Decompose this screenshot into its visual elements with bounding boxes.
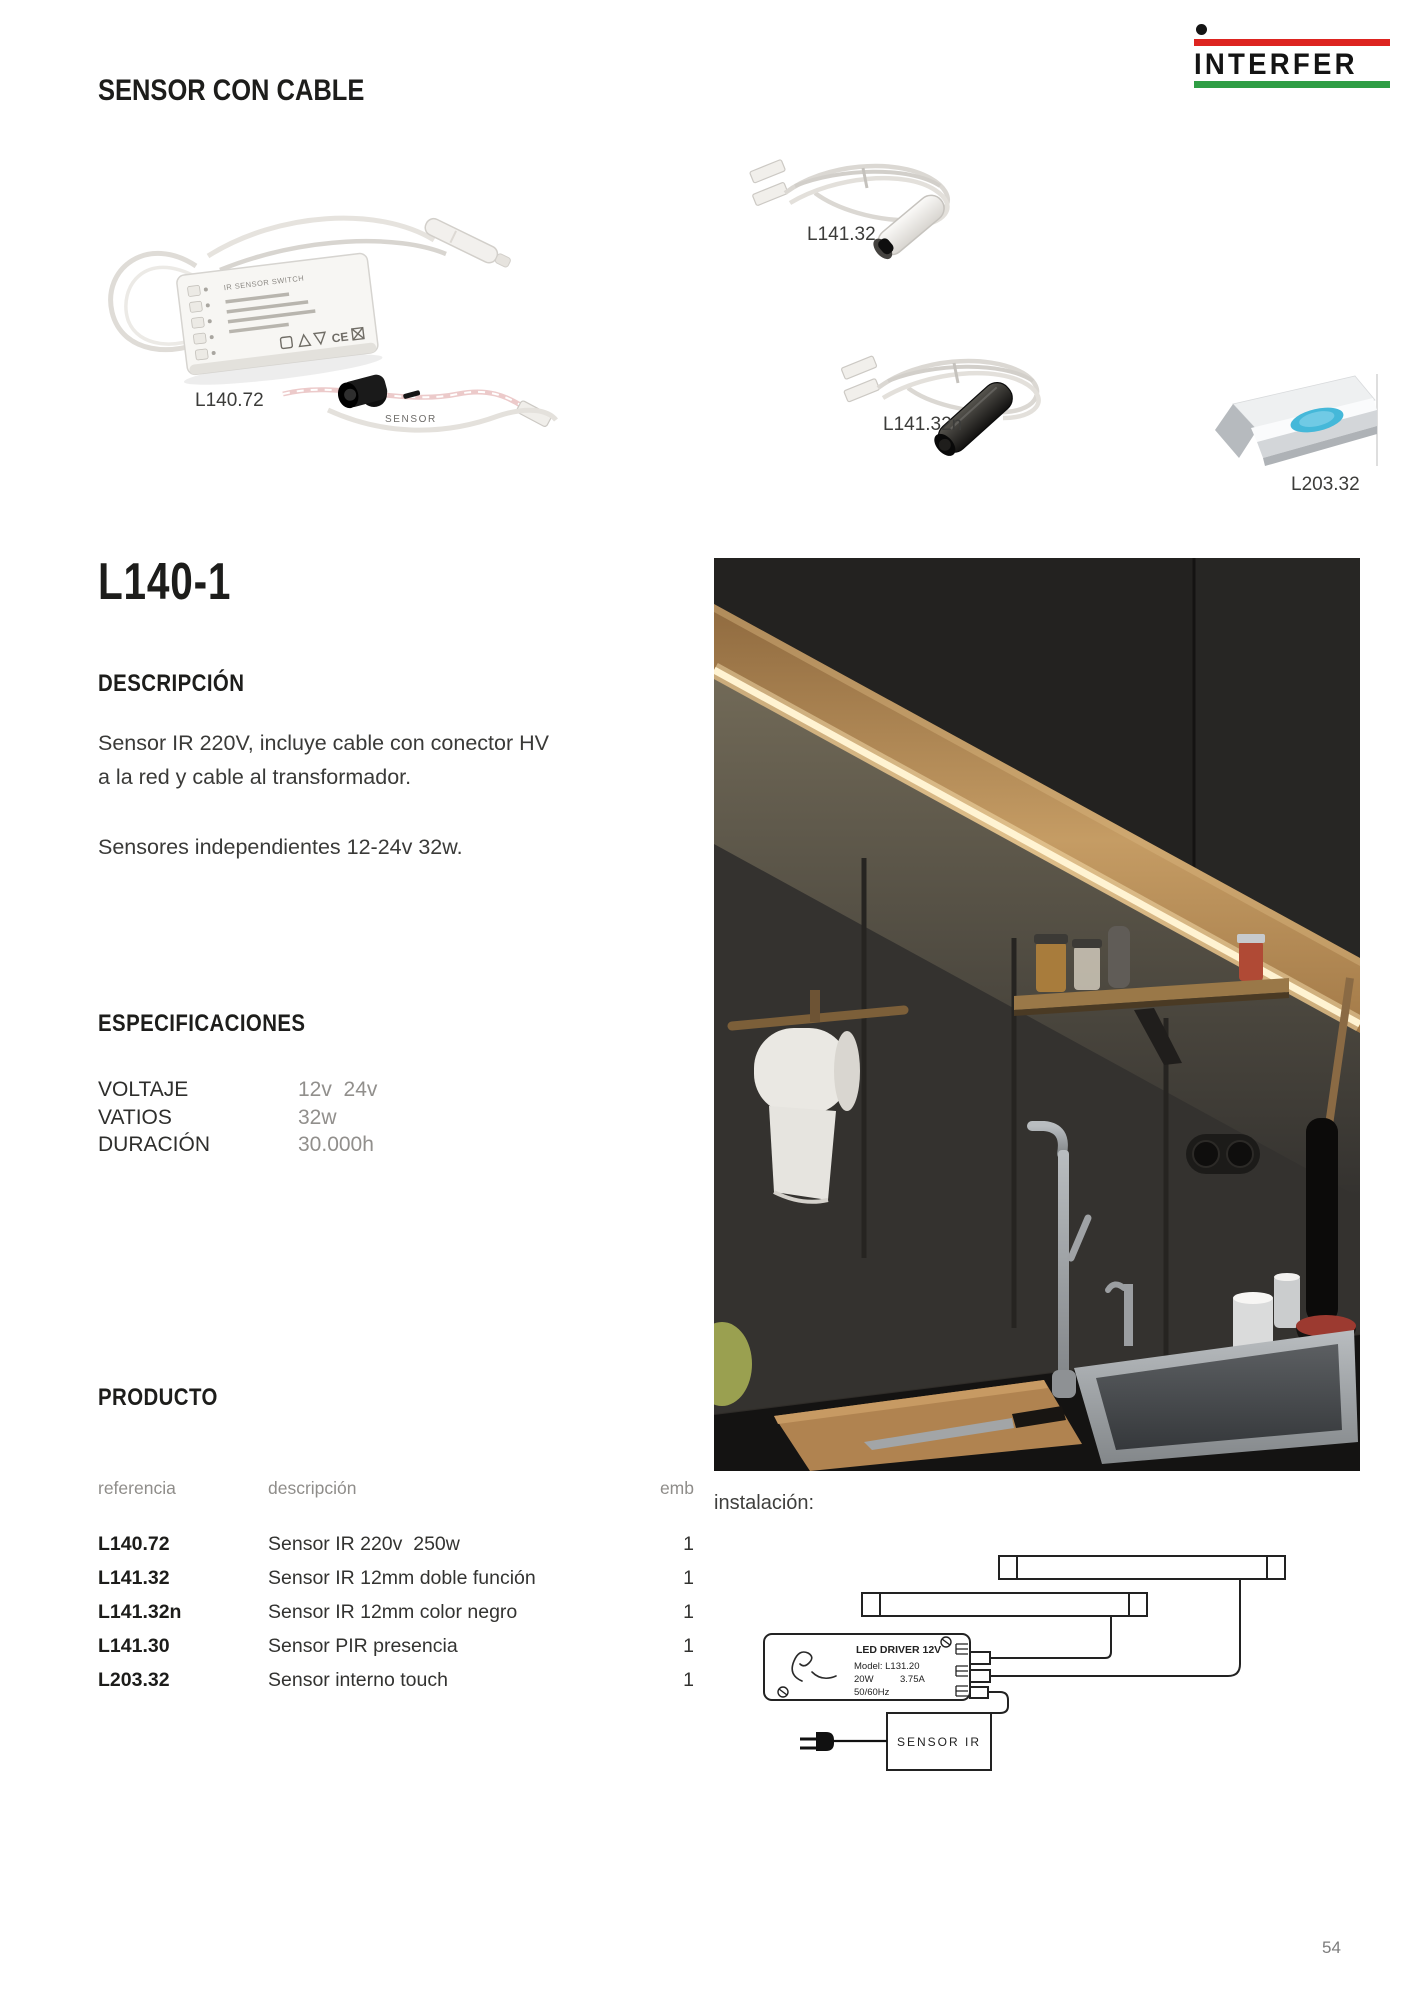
producto-heading: PRODUCTO: [98, 1384, 218, 1412]
logo-green-bar: [1194, 81, 1390, 88]
product-label-l140-72: L140.72: [195, 390, 264, 412]
power-outlet: [1186, 1134, 1260, 1174]
product-photo-l141-32: [745, 148, 995, 288]
cell-desc: Sensor IR 220v 250w: [268, 1527, 652, 1561]
spec-value: 30.000h: [298, 1131, 374, 1159]
especificaciones-heading: ESPECIFICACIONES: [98, 1010, 305, 1038]
cell-desc: Sensor interno touch: [268, 1663, 652, 1697]
driver-box: IR SENSOR SWITCH CE: [171, 252, 384, 391]
table-row: L141.32 Sensor IR 12mm doble función 1: [98, 1561, 694, 1595]
descripcion-heading: DESCRIPCIÓN: [98, 670, 244, 698]
kitchen-photo: [714, 558, 1360, 1471]
led-profile-top: [999, 1556, 1285, 1579]
product-label-l141-32: L141.32: [807, 224, 876, 246]
ce-mark: CE: [331, 330, 349, 346]
table-row: L203.32 Sensor interno touch 1: [98, 1663, 694, 1697]
driver-current: 3.75A: [900, 1674, 925, 1685]
driver-model: Model: L131.20: [854, 1661, 920, 1672]
cell-ref: L141.32n: [98, 1595, 268, 1629]
table-row: L140.72 Sensor IR 220v 250w 1: [98, 1527, 694, 1561]
cell-desc: Sensor IR 12mm color negro: [268, 1595, 652, 1629]
descripcion-line-1: Sensor IR 220V, incluye cable con conect…: [98, 726, 549, 760]
product-photo-l140-72: IR SENSOR SWITCH CE: [78, 148, 568, 448]
table-header: referencia descripción emb: [98, 1478, 694, 1499]
col-referencia: referencia: [98, 1478, 268, 1499]
sensor-head-white: [869, 190, 949, 263]
driver-frequency: 50/60Hz: [854, 1687, 890, 1698]
table-row: L141.30 Sensor PIR presencia 1: [98, 1629, 694, 1663]
descripcion-line-2: a la red y cable al transformador.: [98, 760, 549, 794]
page-title: SENSOR CON CABLE: [98, 74, 364, 108]
product-label-l203-32: L203.32: [1291, 474, 1360, 496]
cell-emb: 1: [652, 1595, 694, 1629]
spec-label: DURACIÓN: [98, 1131, 298, 1159]
driver-power: 20W: [854, 1674, 874, 1685]
cell-ref: L141.30: [98, 1629, 268, 1663]
sensor-ir-label: SENSOR IR: [897, 1735, 981, 1749]
cell-ref: L203.32: [98, 1663, 268, 1697]
pepper-mill: [1306, 1118, 1338, 1323]
driver-title: LED DRIVER 12V: [856, 1644, 941, 1656]
cell-desc: Sensor IR 12mm doble función: [268, 1561, 652, 1595]
table-row: L141.32n Sensor IR 12mm color negro 1: [98, 1595, 694, 1629]
hv-connector: [423, 216, 513, 272]
spec-value: 12v 24v: [298, 1076, 377, 1104]
installation-diagram: LED DRIVER 12V Model: L131.20 20W 3.75A …: [750, 1540, 1310, 1810]
led-profile-middle: [862, 1593, 1147, 1616]
product-label-l141-32n: L141.32n: [883, 414, 962, 436]
spec-row-voltaje: VOLTAJE 12v 24v: [98, 1076, 377, 1104]
catalog-page: SENSOR CON CABLE INTERFER: [0, 0, 1414, 2000]
col-emb: emb: [652, 1478, 694, 1499]
col-descripcion: descripción: [268, 1478, 652, 1499]
descripcion-note: Sensores independientes 12-24v 32w.: [98, 830, 463, 864]
spec-row-vatios: VATIOS 32w: [98, 1104, 377, 1132]
power-plug-icon: [800, 1732, 887, 1751]
section-code: L140-1: [98, 552, 231, 612]
cell-desc: Sensor PIR presencia: [268, 1629, 652, 1663]
product-photo-l141-32n: [838, 348, 1093, 483]
spec-value: 32w: [298, 1104, 337, 1132]
spec-table: VOLTAJE 12v 24v VATIOS 32w DURACIÓN 30.0…: [98, 1076, 377, 1159]
spec-label: VATIOS: [98, 1104, 298, 1132]
cell-emb: 1: [652, 1527, 694, 1561]
sensor-caption: SENSOR: [385, 414, 437, 425]
spec-label: VOLTAJE: [98, 1076, 298, 1104]
cell-ref: L140.72: [98, 1527, 268, 1561]
logo-dot-icon: [1196, 24, 1207, 35]
cell-ref: L141.32: [98, 1561, 268, 1595]
cell-emb: 1: [652, 1561, 694, 1595]
cell-emb: 1: [652, 1629, 694, 1663]
brand-logo: INTERFER: [1194, 24, 1390, 90]
logo-red-bar: [1194, 39, 1390, 46]
spec-row-duracion: DURACIÓN 30.000h: [98, 1131, 377, 1159]
page-number: 54: [1322, 1938, 1341, 1958]
product-table: L140.72 Sensor IR 220v 250w 1 L141.32 Se…: [98, 1527, 694, 1697]
ir-sensor-knob: [335, 373, 389, 411]
installation-label: instalación:: [714, 1492, 814, 1515]
descripcion-paragraph: Sensor IR 220V, incluye cable con conect…: [98, 726, 549, 794]
cell-emb: 1: [652, 1663, 694, 1697]
logo-wordmark: INTERFER: [1194, 48, 1358, 82]
product-photo-l203-32: [1205, 366, 1385, 481]
